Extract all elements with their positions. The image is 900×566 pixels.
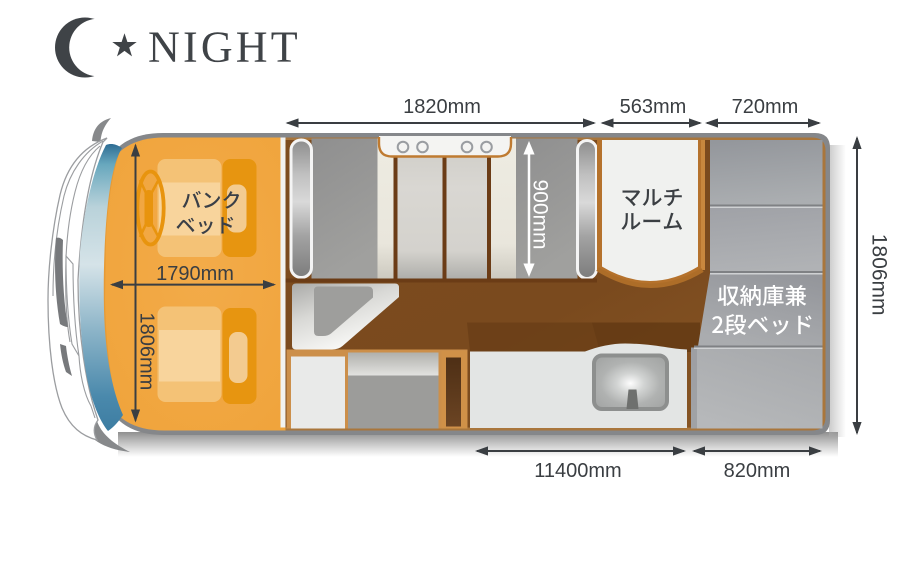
svg-text:1790mm: 1790mm	[156, 263, 234, 285]
svg-text:11400mm: 11400mm	[534, 460, 621, 482]
svg-text:NIGHT: NIGHT	[148, 23, 301, 72]
svg-text:563mm: 563mm	[620, 96, 687, 118]
svg-text:1820mm: 1820mm	[403, 96, 481, 118]
svg-text:820mm: 820mm	[724, 460, 791, 482]
svg-text:720mm: 720mm	[732, 96, 799, 118]
svg-text:1806mm: 1806mm	[136, 313, 158, 391]
svg-text:900mm: 900mm	[529, 180, 552, 250]
svg-text:1806mm: 1806mm	[868, 234, 891, 316]
